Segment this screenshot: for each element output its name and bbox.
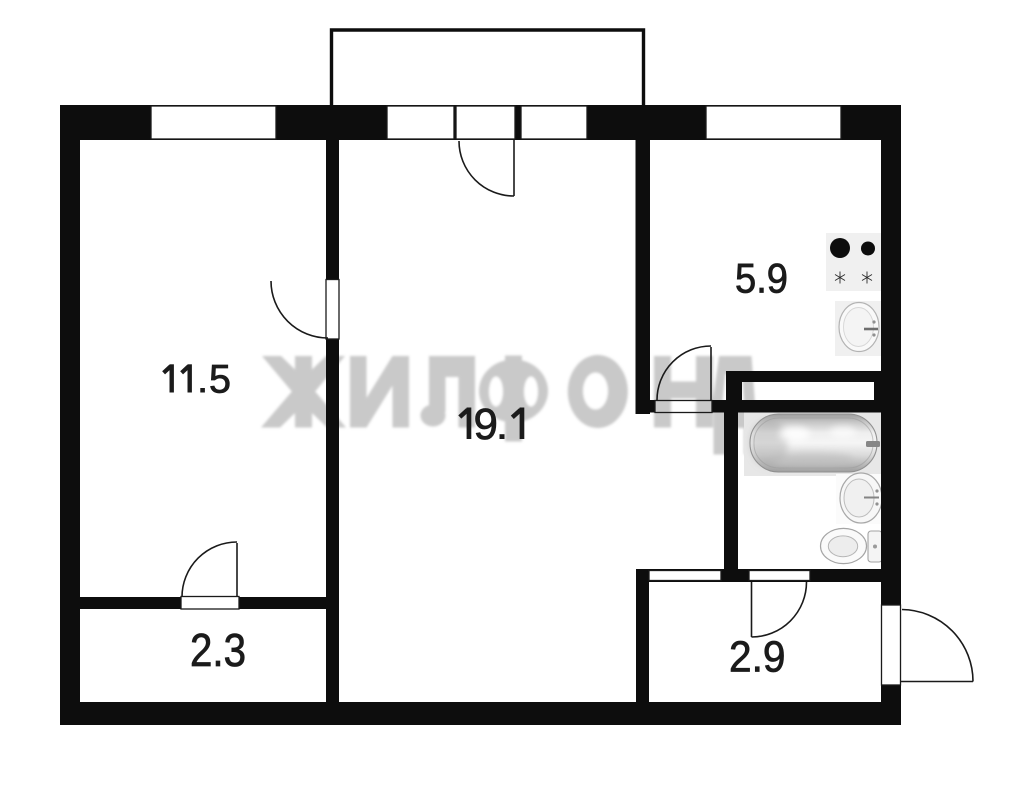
svg-text:5.9: 5.9	[735, 255, 788, 302]
svg-text:2.3: 2.3	[190, 624, 246, 676]
svg-text:5: 5	[209, 358, 231, 402]
svg-text:9: 9	[474, 400, 498, 449]
svg-text:2.9: 2.9	[729, 634, 786, 682]
